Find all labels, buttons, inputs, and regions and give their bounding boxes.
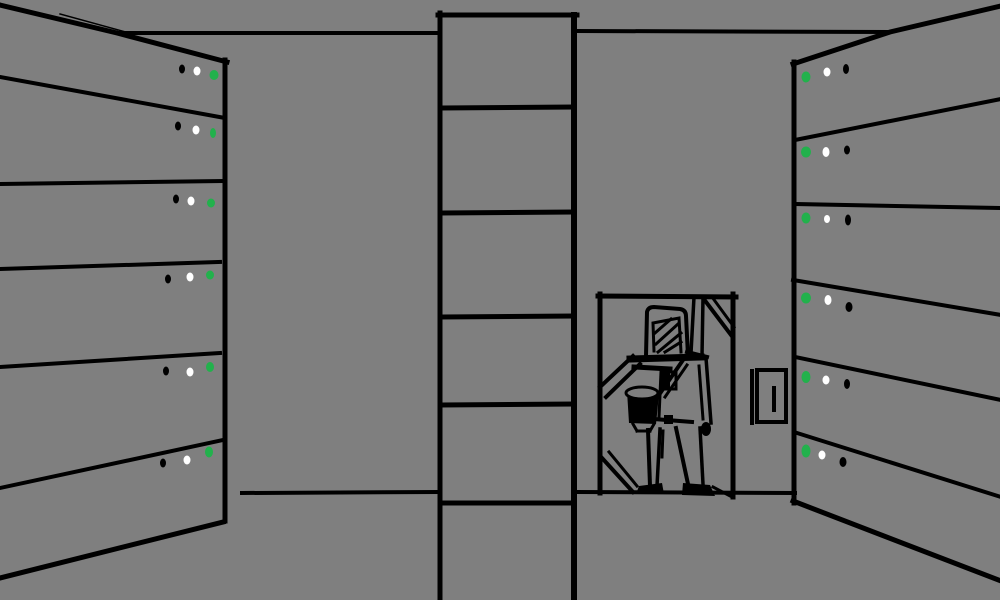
right-rack-status-leds xyxy=(801,64,853,467)
status-led-black xyxy=(844,379,850,389)
person-left-arm[interactable] xyxy=(600,356,633,387)
center-column xyxy=(438,13,577,600)
status-led-black xyxy=(845,215,851,226)
person-scarf[interactable] xyxy=(630,357,701,359)
status-led-black xyxy=(165,275,171,284)
status-led-white xyxy=(187,273,194,282)
rack-shelf-line xyxy=(0,181,222,184)
column-divider xyxy=(442,212,572,213)
rack-bottom-edge xyxy=(793,501,1000,581)
status-led-white xyxy=(823,147,830,157)
satchel-bag-flap[interactable] xyxy=(626,387,658,399)
person-right-arm-raised[interactable] xyxy=(691,297,694,353)
panel-box[interactable] xyxy=(757,370,786,422)
person-left-shoe[interactable] xyxy=(636,483,664,494)
door-top-edge[interactable] xyxy=(598,296,736,297)
rack-shelf-line xyxy=(0,353,220,367)
status-led-green xyxy=(210,128,216,138)
status-led-black xyxy=(173,195,179,204)
rack-top-edge xyxy=(793,6,1000,64)
status-led-black xyxy=(175,122,181,131)
rack-shelf-line xyxy=(0,262,220,269)
status-led-white xyxy=(194,67,201,76)
person-right-leg[interactable] xyxy=(700,428,703,484)
status-led-white xyxy=(825,295,832,305)
status-led-green xyxy=(802,445,811,458)
person-right-side[interactable] xyxy=(699,366,703,419)
person-glove[interactable] xyxy=(701,422,711,436)
status-led-green xyxy=(206,362,214,372)
status-led-white xyxy=(819,451,826,460)
status-led-white xyxy=(824,215,830,223)
floor-line-left xyxy=(242,492,438,493)
person-left-leg[interactable] xyxy=(648,430,650,486)
status-led-green xyxy=(207,199,215,208)
scene-canvas xyxy=(0,0,1000,600)
status-led-white xyxy=(193,126,200,135)
status-led-black xyxy=(160,459,166,468)
person-right-side[interactable] xyxy=(706,358,711,423)
status-led-black xyxy=(844,146,850,155)
person-belt-buckle[interactable] xyxy=(664,415,673,424)
person-right-shoe[interactable] xyxy=(682,483,715,496)
rack-bottom-edge xyxy=(0,522,223,578)
person-right-arm-raised[interactable] xyxy=(702,298,703,356)
status-led-black xyxy=(840,457,847,467)
status-led-green xyxy=(802,213,811,224)
status-led-green xyxy=(210,70,219,80)
person-inseam[interactable] xyxy=(662,431,663,457)
person-figure[interactable] xyxy=(600,297,715,496)
status-led-green xyxy=(205,447,213,458)
status-led-black xyxy=(179,65,185,74)
visor-hatch-line[interactable] xyxy=(656,324,678,344)
wall-control-panel[interactable] xyxy=(752,370,786,423)
column-divider xyxy=(442,316,572,317)
status-led-white xyxy=(823,376,830,385)
status-led-white xyxy=(187,368,194,377)
column-divider xyxy=(442,107,572,108)
status-led-white xyxy=(184,456,191,465)
status-led-green xyxy=(801,293,811,304)
ceiling-line-right xyxy=(577,31,889,32)
rack-shelf-line xyxy=(793,280,1000,315)
status-led-black xyxy=(163,367,169,376)
rack-shelf-line xyxy=(796,204,1000,208)
rack-shelf-line xyxy=(0,440,223,488)
status-led-green xyxy=(206,271,214,280)
rack-shelf-line xyxy=(0,77,225,118)
status-led-white xyxy=(824,68,831,77)
status-led-green xyxy=(802,72,811,83)
person-left-leg[interactable] xyxy=(657,429,660,486)
person-chest-patch-fill[interactable] xyxy=(663,373,670,388)
rack-shelf-line xyxy=(797,433,1000,497)
status-led-black xyxy=(846,302,853,312)
status-led-green xyxy=(801,147,811,158)
status-led-white xyxy=(188,197,195,206)
person-right-leg[interactable] xyxy=(676,428,688,484)
left-rack-status-leds xyxy=(160,65,219,468)
rack-shelf-line xyxy=(795,99,1000,140)
status-led-green xyxy=(802,371,811,383)
right-server-rack xyxy=(793,6,1000,581)
status-led-black xyxy=(843,64,849,74)
column-divider xyxy=(442,404,572,405)
left-server-rack xyxy=(0,5,227,578)
scene-drawing xyxy=(0,0,1000,600)
